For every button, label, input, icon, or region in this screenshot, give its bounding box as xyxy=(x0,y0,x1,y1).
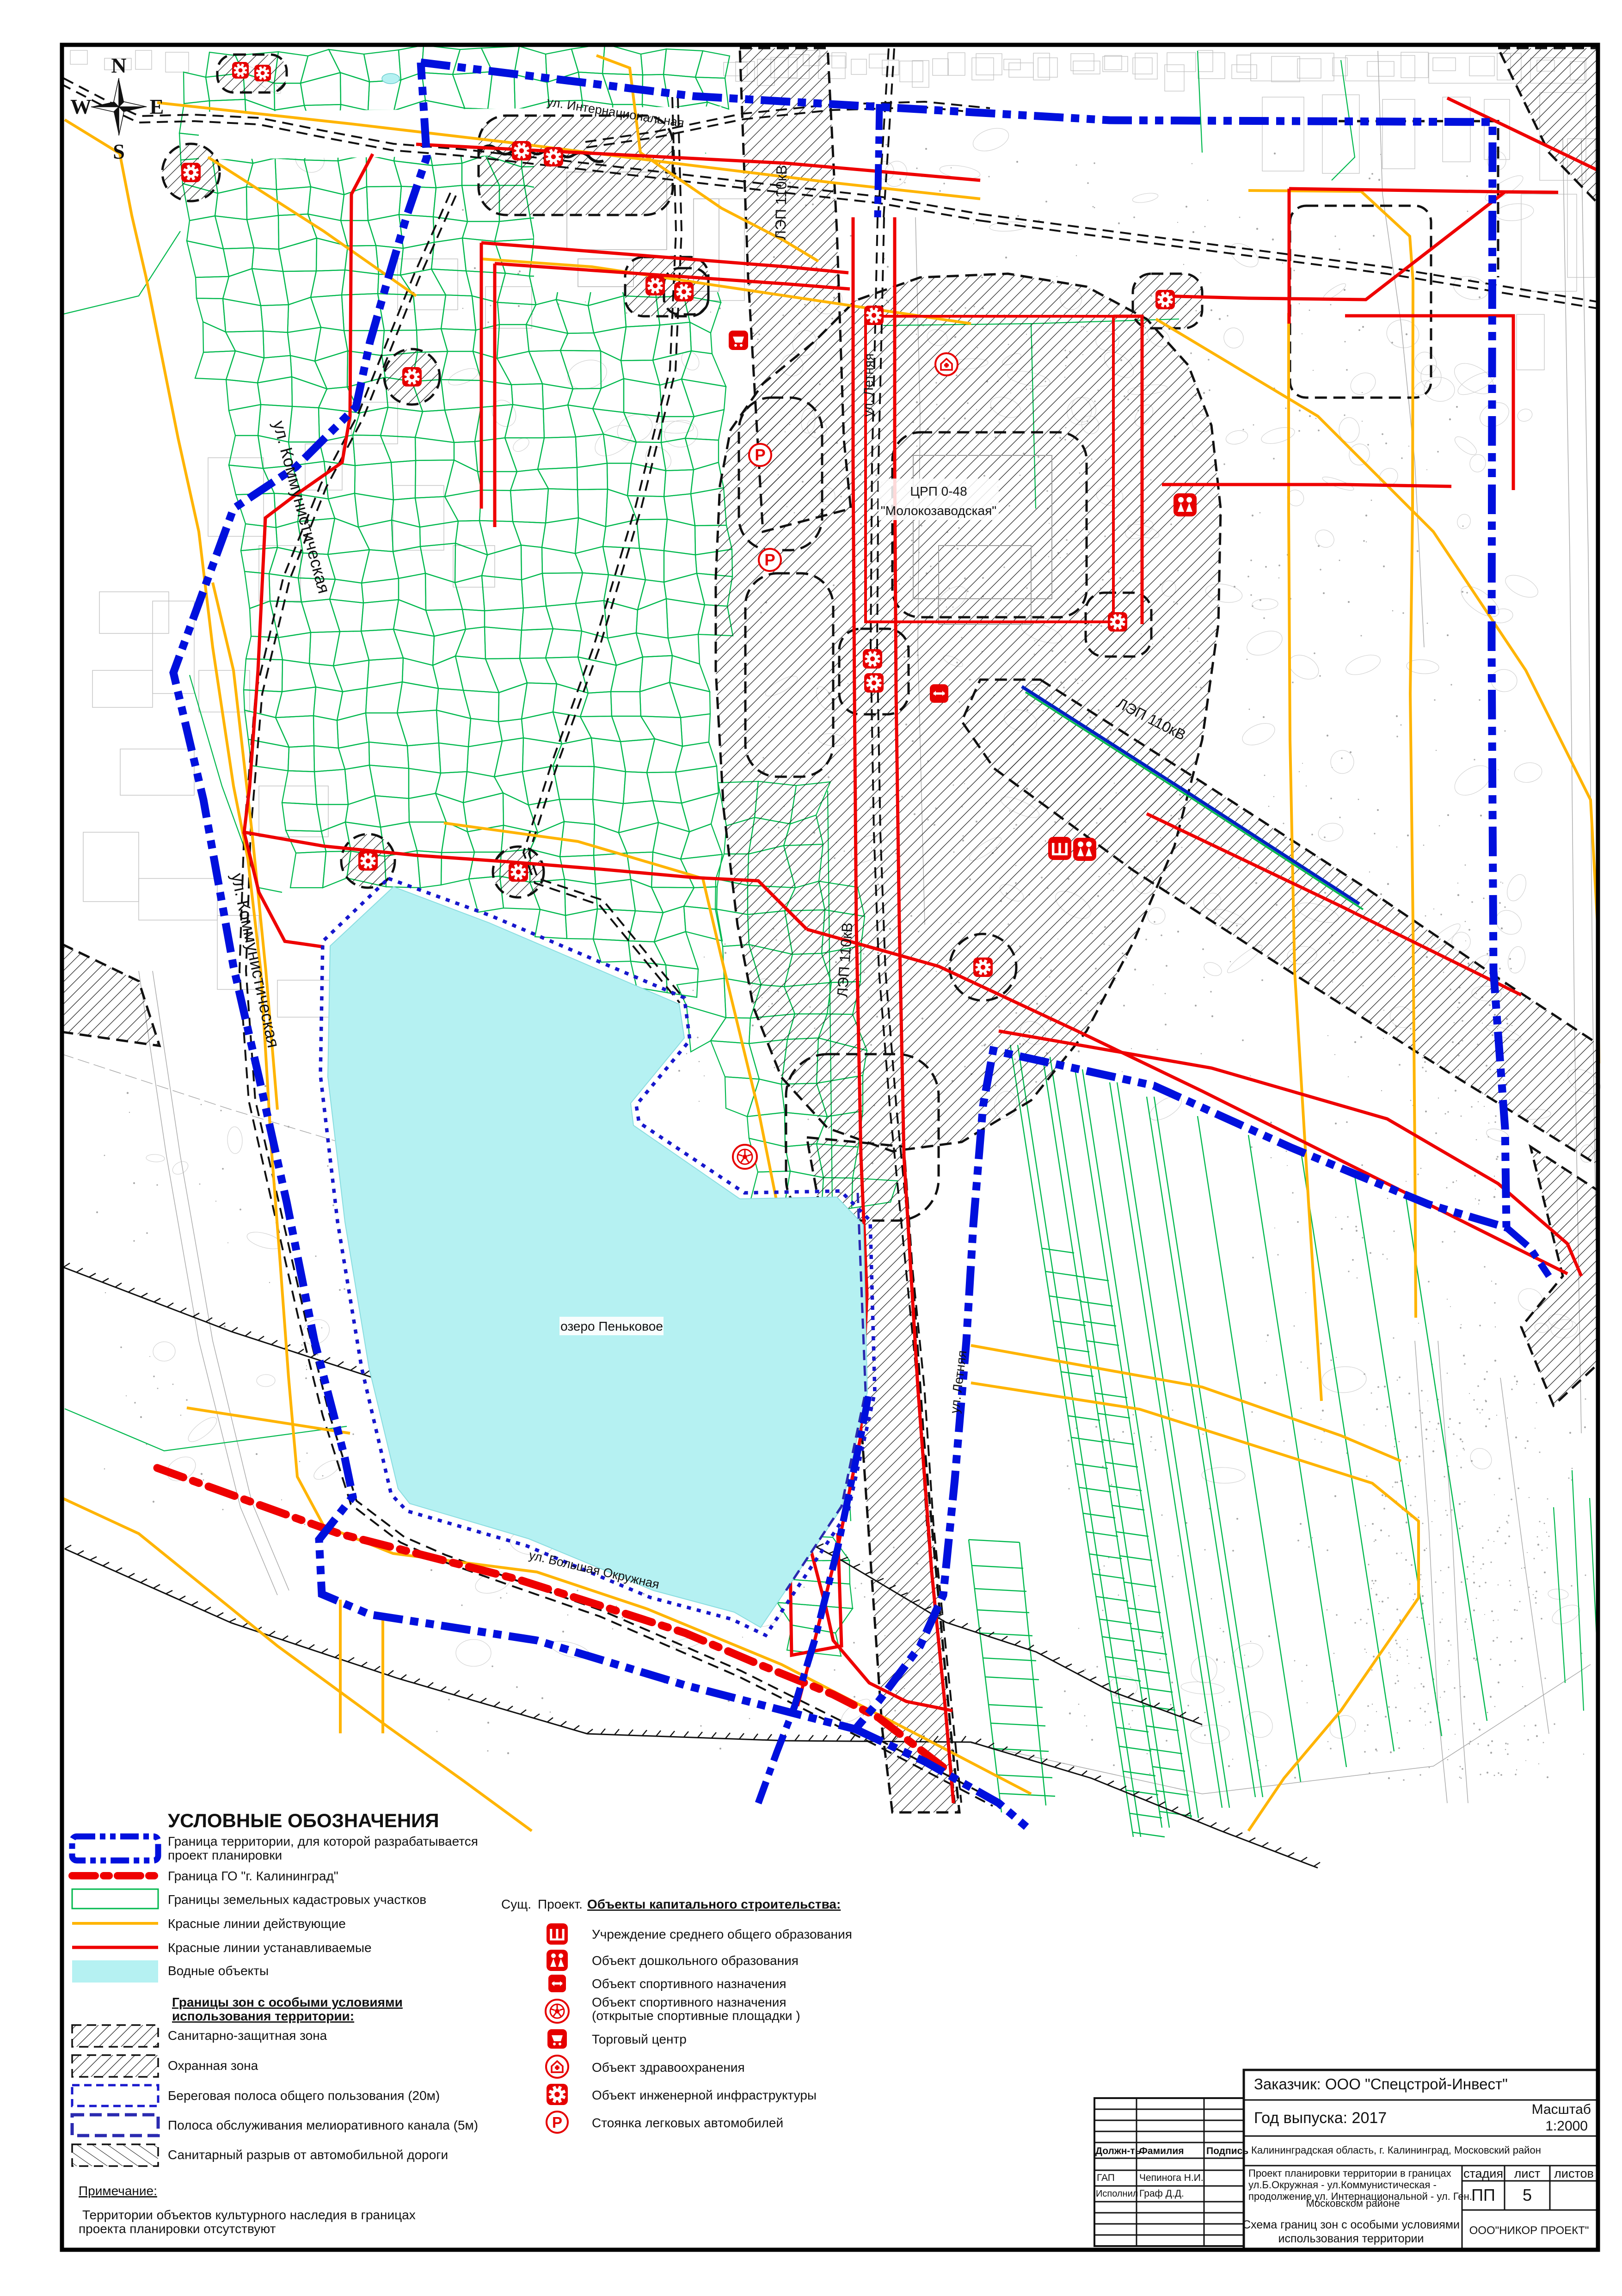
svg-text:озеро Пеньковое: озеро Пеньковое xyxy=(560,1319,663,1333)
svg-text:Граф Д.Д.: Граф Д.Д. xyxy=(1139,2188,1184,2199)
svg-text:"Молокозаводская": "Молокозаводская" xyxy=(881,503,996,518)
svg-text:лист: лист xyxy=(1514,2167,1541,2180)
svg-text:Санитарный разрыв от автомобил: Санитарный разрыв от автомобильной дорог… xyxy=(168,2148,448,2162)
svg-text:Береговая полоса общего пользо: Береговая полоса общего пользования (20м… xyxy=(168,2088,440,2103)
svg-text:проекта планировки отсутствуют: проекта планировки отсутствуют xyxy=(79,2222,276,2236)
svg-text:Проект планировки территор: Проект планировки территории в границах xyxy=(1248,2167,1451,2179)
svg-text:W: W xyxy=(70,95,92,118)
svg-text:1:2000: 1:2000 xyxy=(1545,2118,1588,2134)
svg-text:использования территории: использования территории xyxy=(1278,2232,1424,2245)
svg-text:Объект здравоохранения: Объект здравоохранения xyxy=(592,2060,745,2075)
svg-text:проект планировки: проект планировки xyxy=(168,1848,282,1862)
svg-text:Красные линии устанавливаемые: Красные линии устанавливаемые xyxy=(168,1940,372,1955)
svg-text:ООО"НИКОР ПРОЕКТ": ООО"НИКОР ПРОЕКТ" xyxy=(1469,2224,1589,2237)
svg-text:Объект спортивного назначения: Объект спортивного назначения xyxy=(592,1995,786,2009)
svg-text:Граница ГО "г. Калининград": Граница ГО "г. Калининград" xyxy=(168,1869,338,1883)
svg-text:Красные линии действующие: Красные линии действующие xyxy=(168,1916,346,1931)
svg-text:Калининградская область, г. Ка: Калининградская область, г. Калининград,… xyxy=(1251,2144,1541,2156)
svg-text:Объект инженерной инфраструкту: Объект инженерной инфраструктуры xyxy=(592,2088,817,2102)
svg-text:Ш: Ш xyxy=(549,1925,565,1944)
svg-text:ул. Летняя: ул. Летняя xyxy=(861,353,876,417)
svg-text:Фамилия: Фамилия xyxy=(1139,2146,1184,2156)
svg-text:E: E xyxy=(150,95,164,118)
svg-text:P: P xyxy=(764,551,775,569)
svg-text:Должн-ть: Должн-ть xyxy=(1095,2146,1141,2156)
svg-text:S: S xyxy=(113,140,125,163)
svg-text:5: 5 xyxy=(1523,2185,1532,2204)
svg-text:N: N xyxy=(111,54,126,77)
svg-text:листов: листов xyxy=(1554,2167,1594,2180)
svg-text:Заказчик: ООО "Спецстрой-Инве: Заказчик: ООО "Спецстрой-Инвест" xyxy=(1254,2075,1508,2093)
svg-text:Московском районе: Московском районе xyxy=(1306,2198,1400,2209)
svg-text:Санитарно-защитная зона: Санитарно-защитная зона xyxy=(168,2028,327,2043)
svg-text:ГАП: ГАП xyxy=(1097,2173,1115,2183)
svg-text:Границы земельных кадастровых: Границы земельных кадастровых участков xyxy=(168,1892,426,1907)
svg-text:Граница территории, для которо: Граница территории, для которой разрабат… xyxy=(168,1834,478,1848)
svg-text:Объект дошкольного образования: Объект дошкольного образования xyxy=(592,1953,799,1968)
svg-text:Территории объектов культурног: Территории объектов культурного наследия… xyxy=(82,2208,416,2222)
svg-text:ул.Б.Окружная -: ул.Б.Окружная - ул.Коммунистическая - xyxy=(1248,2179,1437,2191)
svg-text:Ш: Ш xyxy=(1051,840,1069,859)
svg-text:Учреждение среднего общего обр: Учреждение среднего общего образования xyxy=(592,1927,852,1941)
svg-text:использования территории:: использования территории: xyxy=(172,2009,354,2023)
svg-text:Объект спортивного назначения: Объект спортивного назначения xyxy=(592,1977,786,1991)
svg-text:Водные объекты: Водные объекты xyxy=(168,1964,269,1978)
svg-text:Сущ.: Сущ. xyxy=(501,1897,531,1911)
svg-text:Примечание:: Примечание: xyxy=(79,2184,157,2198)
svg-text:Полоса обслуживания мелиоратив: Полоса обслуживания мелиоративного канал… xyxy=(168,2118,478,2132)
svg-text:(открытые спортивные площадки: (открытые спортивные площадки ) xyxy=(592,2008,800,2023)
svg-text:ПП: ПП xyxy=(1471,2185,1495,2204)
svg-text:Схема границ зон с особыми усл: Схема границ зон с особыми условиями xyxy=(1242,2218,1460,2231)
svg-text:ЛЭП 110кВ: ЛЭП 110кВ xyxy=(772,165,790,240)
svg-text:Объекты капитального строитель: Объекты капитального строительства: xyxy=(587,1897,841,1911)
svg-text:стадия: стадия xyxy=(1463,2167,1503,2180)
svg-text:Чепинога Н.И.: Чепинога Н.И. xyxy=(1139,2173,1204,2183)
svg-text:Подпись: Подпись xyxy=(1206,2146,1248,2156)
svg-text:Год выпуска: 2017: Год выпуска: 2017 xyxy=(1254,2109,1387,2127)
svg-text:Границы зон с особыми условиям: Границы зон с особыми условиями xyxy=(172,1995,403,2009)
svg-text:УСЛОВНЫЕ ОБОЗНАЧЕНИЯ: УСЛОВНЫЕ ОБОЗНАЧЕНИЯ xyxy=(168,1810,439,1831)
svg-text:Исполнил: Исполнил xyxy=(1096,2189,1138,2199)
svg-text:P: P xyxy=(755,446,765,464)
svg-text:Охранная зона: Охранная зона xyxy=(168,2058,258,2073)
svg-text:Стоянка легковых автомобилей: Стоянка легковых автомобилей xyxy=(592,2116,783,2130)
svg-text:P: P xyxy=(552,2114,562,2131)
svg-text:Проект.: Проект. xyxy=(538,1897,583,1911)
svg-text:ЦРП 0-48: ЦРП 0-48 xyxy=(910,484,967,498)
svg-text:Торговый центр: Торговый центр xyxy=(592,2032,687,2046)
svg-text:Масштаб: Масштаб xyxy=(1532,2102,1591,2117)
